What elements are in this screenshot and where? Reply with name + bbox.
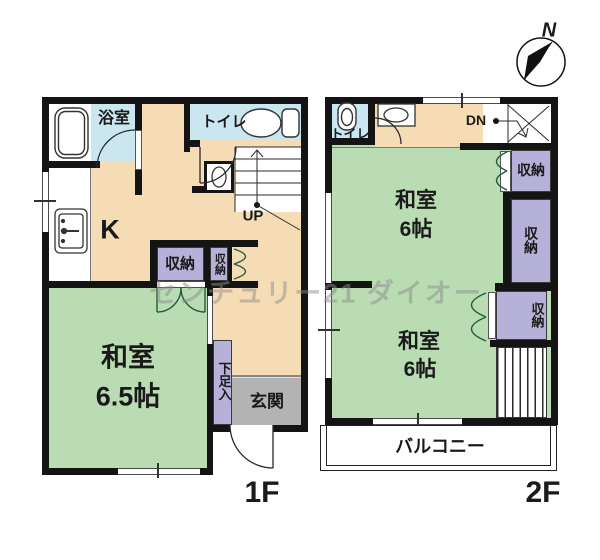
wall-segment [325,418,373,425]
wall-segment [42,97,308,104]
f2-closet-bottom-leaf [488,292,496,339]
balcony-label: バルコニー [395,437,485,458]
wall-segment [503,199,511,283]
washitsu-size: 6帖 [404,358,437,382]
kitchen-label: K [100,214,120,245]
stairs-up-label: UP [243,207,264,224]
washitsu-name: 和室 [101,342,155,373]
window-tick [461,93,463,108]
bath-door-leaf [135,130,142,170]
window [42,172,49,232]
window-tick [34,200,56,202]
f2-room-divider-line [332,147,460,148]
floor-plan: 浴室 トイレ K UP 収納 収納 和室 6.5帖 下足入 玄関 1F トイレ … [0,0,600,560]
toilet-label: トイレ [330,128,369,143]
shoe-cabinet-label: 下足入 [216,362,231,401]
f1-stairs-area [235,147,301,212]
wall-segment [490,340,551,347]
watermark: センチュリー21 ダイオー [149,278,483,309]
wall-segment [213,425,230,432]
entrance-door-arc [230,425,273,468]
wall-segment [301,97,308,432]
closet-label: 収納 [523,226,539,254]
wall-segment [42,232,49,475]
f2-stairs-area [483,104,551,143]
wall-segment [42,161,100,168]
washitsu-size: 6帖 [400,218,433,242]
wall-segment [192,186,204,193]
wall-segment [325,97,423,104]
wall-segment [228,247,232,281]
wall-segment [551,97,558,425]
window [118,468,200,475]
window-tick [157,463,159,478]
window [325,193,332,283]
f1-entrance-step-line [232,375,301,377]
f2-hatched-area [496,347,547,418]
closet-label: 収納 [213,253,226,275]
toilet-label: トイレ [201,113,246,130]
wall-segment [273,425,308,432]
wall-segment [42,468,118,475]
washitsu-name: 和室 [398,330,440,354]
wall-segment [495,283,551,291]
wall-segment [462,418,558,425]
f1-bathtub-area [49,104,91,161]
f1-kitchen-counter [49,168,91,281]
closet-label: 収納 [529,302,544,328]
wall-segment [184,140,200,147]
wall-segment [207,344,213,475]
f1-washbasin-niche [204,161,234,193]
window-tick [318,329,340,331]
f1-washitsu-floor [49,288,207,468]
wall-segment [503,192,551,199]
bath-label: 浴室 [98,110,130,128]
wall-segment [150,240,258,247]
closet-label: 収納 [517,162,545,178]
f2-closet-top-leaf [500,151,511,192]
wall-segment [500,97,558,104]
entrance-label: 玄関 [250,392,284,412]
floor2-label: 2F [525,476,560,511]
compass-north-label: N [542,20,556,43]
closet-label: 収納 [165,255,195,272]
washitsu-size: 6.5帖 [96,381,161,412]
compass-icon [517,38,565,86]
wall-segment [325,97,332,193]
wall-segment [460,143,551,150]
floor1-label: 1F [244,476,279,511]
wall-segment [42,281,157,288]
washitsu-name: 和室 [395,189,437,213]
stairs-down-label: DN [466,112,486,128]
